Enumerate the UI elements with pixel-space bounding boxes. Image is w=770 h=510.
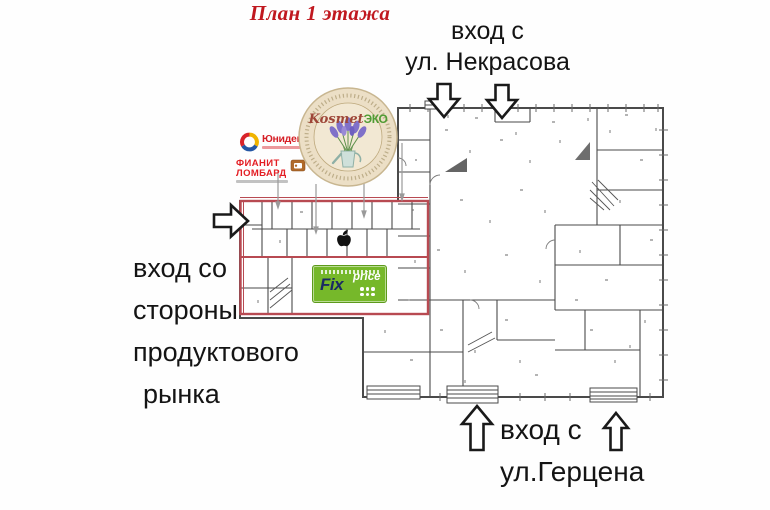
fix-price-logo: Fix price <box>312 265 387 303</box>
kosmet-eco-name: KosmetЭКО <box>297 110 399 128</box>
fianit-line2: ЛОМБАРД <box>236 169 287 179</box>
label-line: вход с <box>385 16 590 47</box>
kosmet-eco-emblem-icon <box>297 86 399 188</box>
screenshot-root: План 1 этажа вход с ул. Некрасова вход с… <box>0 0 770 510</box>
kosmet-name-part1: Kosmet <box>309 112 364 127</box>
label-entrance-nekrasova: вход с ул. Некрасова <box>385 16 590 78</box>
label-line: рынка <box>133 373 299 415</box>
label-line: ул.Герцена <box>500 451 644 493</box>
unidengi-swirl-icon <box>239 130 260 154</box>
fix-price-dots <box>360 287 377 296</box>
label-entrance-gertsena: вход с ул.Герцена <box>500 409 644 493</box>
arrow-up-icon <box>462 406 492 450</box>
label-line: вход со <box>133 247 299 289</box>
fianit-subtext-blur <box>236 180 288 183</box>
kosmet-eco-logo: KosmetЭКО <box>297 86 399 188</box>
label-line: вход с <box>500 409 644 451</box>
label-line: ул. Некрасова <box>385 47 590 78</box>
kosmet-name-part2: ЭКО <box>364 112 388 126</box>
label-line: стороны <box>133 289 299 331</box>
label-line: продуктового <box>133 331 299 373</box>
fix-price-word1: Fix <box>320 275 343 294</box>
label-entrance-market: вход со стороны продуктового рынка <box>133 247 299 415</box>
fix-price-word2: price <box>353 271 381 283</box>
